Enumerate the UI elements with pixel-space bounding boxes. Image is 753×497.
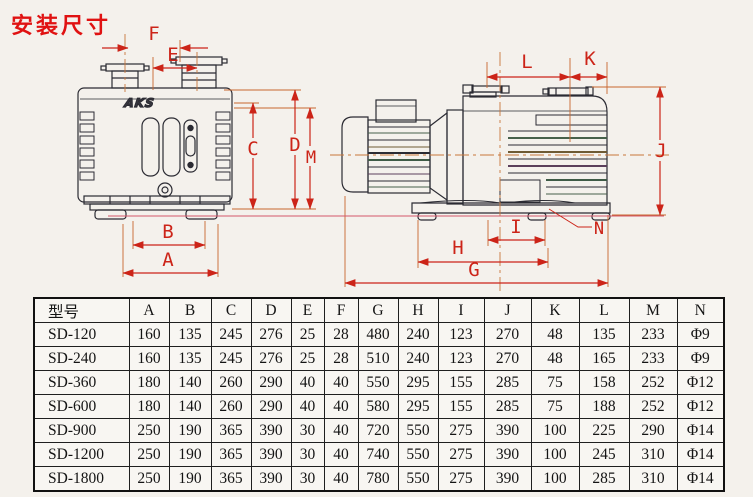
model-cell: SD-120 <box>34 323 129 347</box>
value-cell: 40 <box>291 395 324 419</box>
value-cell: 140 <box>169 395 211 419</box>
value-cell: 48 <box>531 347 579 371</box>
installation-drawing: AKS <box>0 0 753 298</box>
col-header-e: E <box>291 298 324 323</box>
table-row: SD-9002501903653903040720550275390100225… <box>34 419 724 443</box>
value-cell: 260 <box>211 395 251 419</box>
col-header-i: I <box>438 298 484 323</box>
pump-fins <box>508 131 607 194</box>
value-cell: 480 <box>358 323 398 347</box>
model-cell: SD-240 <box>34 347 129 371</box>
value-cell: 252 <box>629 371 677 395</box>
value-cell: Φ9 <box>677 347 724 371</box>
dim-label-i: I <box>510 216 521 238</box>
value-cell: 190 <box>169 419 211 443</box>
value-cell: 100 <box>531 443 579 467</box>
table-body: SD-1201601352452762528480240123270481352… <box>34 323 724 492</box>
table-row: SD-2401601352452762528510240123270481652… <box>34 347 724 371</box>
value-cell: Φ14 <box>677 419 724 443</box>
table-head: 型号ABCDEFGHIJKLMN <box>34 298 724 323</box>
model-cell: SD-360 <box>34 371 129 395</box>
value-cell: 285 <box>484 395 531 419</box>
value-cell: 140 <box>169 371 211 395</box>
dim-label-j: J <box>655 140 666 162</box>
value-cell: 290 <box>251 395 291 419</box>
value-cell: 180 <box>129 371 169 395</box>
value-cell: 550 <box>398 443 438 467</box>
value-cell: 240 <box>398 347 438 371</box>
value-cell: 270 <box>484 347 531 371</box>
dim-label-a: A <box>162 249 174 271</box>
value-cell: 40 <box>291 371 324 395</box>
value-cell: 740 <box>358 443 398 467</box>
value-cell: 252 <box>629 395 677 419</box>
col-header-d: D <box>251 298 291 323</box>
value-cell: 390 <box>251 443 291 467</box>
dim-label-f: F <box>148 23 159 45</box>
dim-label-c: C <box>247 138 258 160</box>
value-cell: Φ14 <box>677 443 724 467</box>
value-cell: 365 <box>211 467 251 492</box>
value-cell: 295 <box>398 371 438 395</box>
value-cell: 580 <box>358 395 398 419</box>
dim-label-m: M <box>306 148 316 168</box>
value-cell: 275 <box>438 467 484 492</box>
value-cell: 75 <box>531 395 579 419</box>
table-row: SD-1201601352452762528480240123270481352… <box>34 323 724 347</box>
value-cell: 275 <box>438 419 484 443</box>
dim-label-n: N <box>594 219 604 239</box>
col-header-model: 型号 <box>34 298 129 323</box>
dim-label-g: G <box>468 259 479 281</box>
front-window-right <box>163 118 180 176</box>
value-cell: 160 <box>129 347 169 371</box>
value-cell: 233 <box>629 347 677 371</box>
motor-end-cap <box>342 117 368 192</box>
value-cell: 123 <box>438 347 484 371</box>
value-cell: 245 <box>211 347 251 371</box>
value-cell: 160 <box>129 323 169 347</box>
value-cell: 260 <box>211 371 251 395</box>
col-header-g: G <box>358 298 398 323</box>
value-cell: 40 <box>324 395 358 419</box>
value-cell: 30 <box>291 467 324 492</box>
value-cell: 285 <box>579 467 629 492</box>
value-cell: 276 <box>251 347 291 371</box>
model-cell: SD-1200 <box>34 443 129 467</box>
value-cell: 295 <box>398 395 438 419</box>
col-header-m: M <box>629 298 677 323</box>
value-cell: 135 <box>169 323 211 347</box>
value-cell: 40 <box>324 467 358 492</box>
table-row: SD-3601801402602904040550295155285751582… <box>34 371 724 395</box>
value-cell: 250 <box>129 467 169 492</box>
gas-ballast-fitting-icon <box>543 87 593 95</box>
value-cell: 365 <box>211 443 251 467</box>
exhaust-port-icon <box>171 57 227 88</box>
dim-label-k: K <box>584 48 596 70</box>
value-cell: 780 <box>358 467 398 492</box>
value-cell: 190 <box>169 467 211 492</box>
value-cell: 30 <box>291 419 324 443</box>
value-cell: 390 <box>251 467 291 492</box>
value-cell: 245 <box>579 443 629 467</box>
col-header-b: B <box>169 298 211 323</box>
front-view-drawing: AKS <box>78 57 232 219</box>
value-cell: 190 <box>169 443 211 467</box>
value-cell: 25 <box>291 347 324 371</box>
value-cell: 225 <box>579 419 629 443</box>
value-cell: 270 <box>484 323 531 347</box>
value-cell: 250 <box>129 443 169 467</box>
carry-handle-icon <box>463 85 509 97</box>
value-cell: 100 <box>531 467 579 492</box>
value-cell: 25 <box>291 323 324 347</box>
value-cell: 365 <box>211 419 251 443</box>
col-header-f: F <box>324 298 358 323</box>
col-header-a: A <box>129 298 169 323</box>
value-cell: 250 <box>129 419 169 443</box>
value-cell: 28 <box>324 347 358 371</box>
table-header-row: 型号ABCDEFGHIJKLMN <box>34 298 724 323</box>
value-cell: 510 <box>358 347 398 371</box>
model-cell: SD-1800 <box>34 467 129 492</box>
value-cell: 155 <box>438 395 484 419</box>
dim-label-h: H <box>452 237 463 259</box>
value-cell: 390 <box>484 467 531 492</box>
motor-body <box>368 120 430 193</box>
value-cell: 245 <box>211 323 251 347</box>
pump-body-front <box>78 88 232 202</box>
value-cell: 550 <box>358 371 398 395</box>
col-header-j: J <box>484 298 531 323</box>
value-cell: 75 <box>531 371 579 395</box>
right-fins <box>216 112 230 180</box>
model-cell: SD-600 <box>34 395 129 419</box>
value-cell: 720 <box>358 419 398 443</box>
value-cell: 40 <box>324 419 358 443</box>
value-cell: 155 <box>438 371 484 395</box>
front-window-left <box>142 118 159 176</box>
value-cell: 233 <box>629 323 677 347</box>
dim-label-e: E <box>167 44 178 66</box>
value-cell: 30 <box>291 443 324 467</box>
value-cell: 188 <box>579 395 629 419</box>
table-row: SD-1800250190365390304078055027539010028… <box>34 467 724 492</box>
value-cell: 310 <box>629 467 677 492</box>
value-cell: 310 <box>629 443 677 467</box>
value-cell: Φ12 <box>677 395 724 419</box>
motor-fins <box>368 127 430 187</box>
value-cell: Φ14 <box>677 467 724 492</box>
col-header-c: C <box>211 298 251 323</box>
col-header-k: K <box>531 298 579 323</box>
pump-body-side <box>463 96 607 205</box>
value-cell: 135 <box>579 323 629 347</box>
value-cell: 40 <box>324 371 358 395</box>
value-cell: 40 <box>324 443 358 467</box>
value-cell: 135 <box>169 347 211 371</box>
value-cell: 165 <box>579 347 629 371</box>
dim-label-b: B <box>162 221 173 243</box>
col-header-l: L <box>579 298 629 323</box>
brand-logo: AKS <box>123 96 156 110</box>
motor-junction-box <box>376 100 416 122</box>
value-cell: 158 <box>579 371 629 395</box>
value-cell: 390 <box>484 443 531 467</box>
value-cell: 180 <box>129 395 169 419</box>
value-cell: 100 <box>531 419 579 443</box>
drain-plug-icon <box>158 183 172 197</box>
value-cell: 290 <box>629 419 677 443</box>
col-header-h: H <box>398 298 438 323</box>
value-cell: 390 <box>484 419 531 443</box>
value-cell: 276 <box>251 323 291 347</box>
dim-label-d: D <box>289 134 300 156</box>
value-cell: 28 <box>324 323 358 347</box>
value-cell: 285 <box>484 371 531 395</box>
table-row: SD-1200250190365390304074055027539010024… <box>34 443 724 467</box>
coupling-bell <box>430 113 447 200</box>
value-cell: 275 <box>438 443 484 467</box>
pump-flange <box>447 110 463 204</box>
col-header-n: N <box>677 298 724 323</box>
value-cell: 290 <box>251 371 291 395</box>
value-cell: 48 <box>531 323 579 347</box>
oil-sight-glass-icon <box>184 120 197 172</box>
model-cell: SD-900 <box>34 419 129 443</box>
value-cell: 240 <box>398 323 438 347</box>
table-row: SD-6001801402602904040580295155285751882… <box>34 395 724 419</box>
value-cell: 390 <box>251 419 291 443</box>
page: 安装尺寸 <box>0 0 753 497</box>
dim-label-l: L <box>521 51 532 73</box>
dimensions-table: 型号ABCDEFGHIJKLMN SD-12016013524527625284… <box>33 297 725 492</box>
value-cell: 550 <box>398 419 438 443</box>
value-cell: 550 <box>398 467 438 492</box>
left-fins <box>80 112 94 180</box>
value-cell: Φ9 <box>677 323 724 347</box>
value-cell: Φ12 <box>677 371 724 395</box>
value-cell: 123 <box>438 323 484 347</box>
